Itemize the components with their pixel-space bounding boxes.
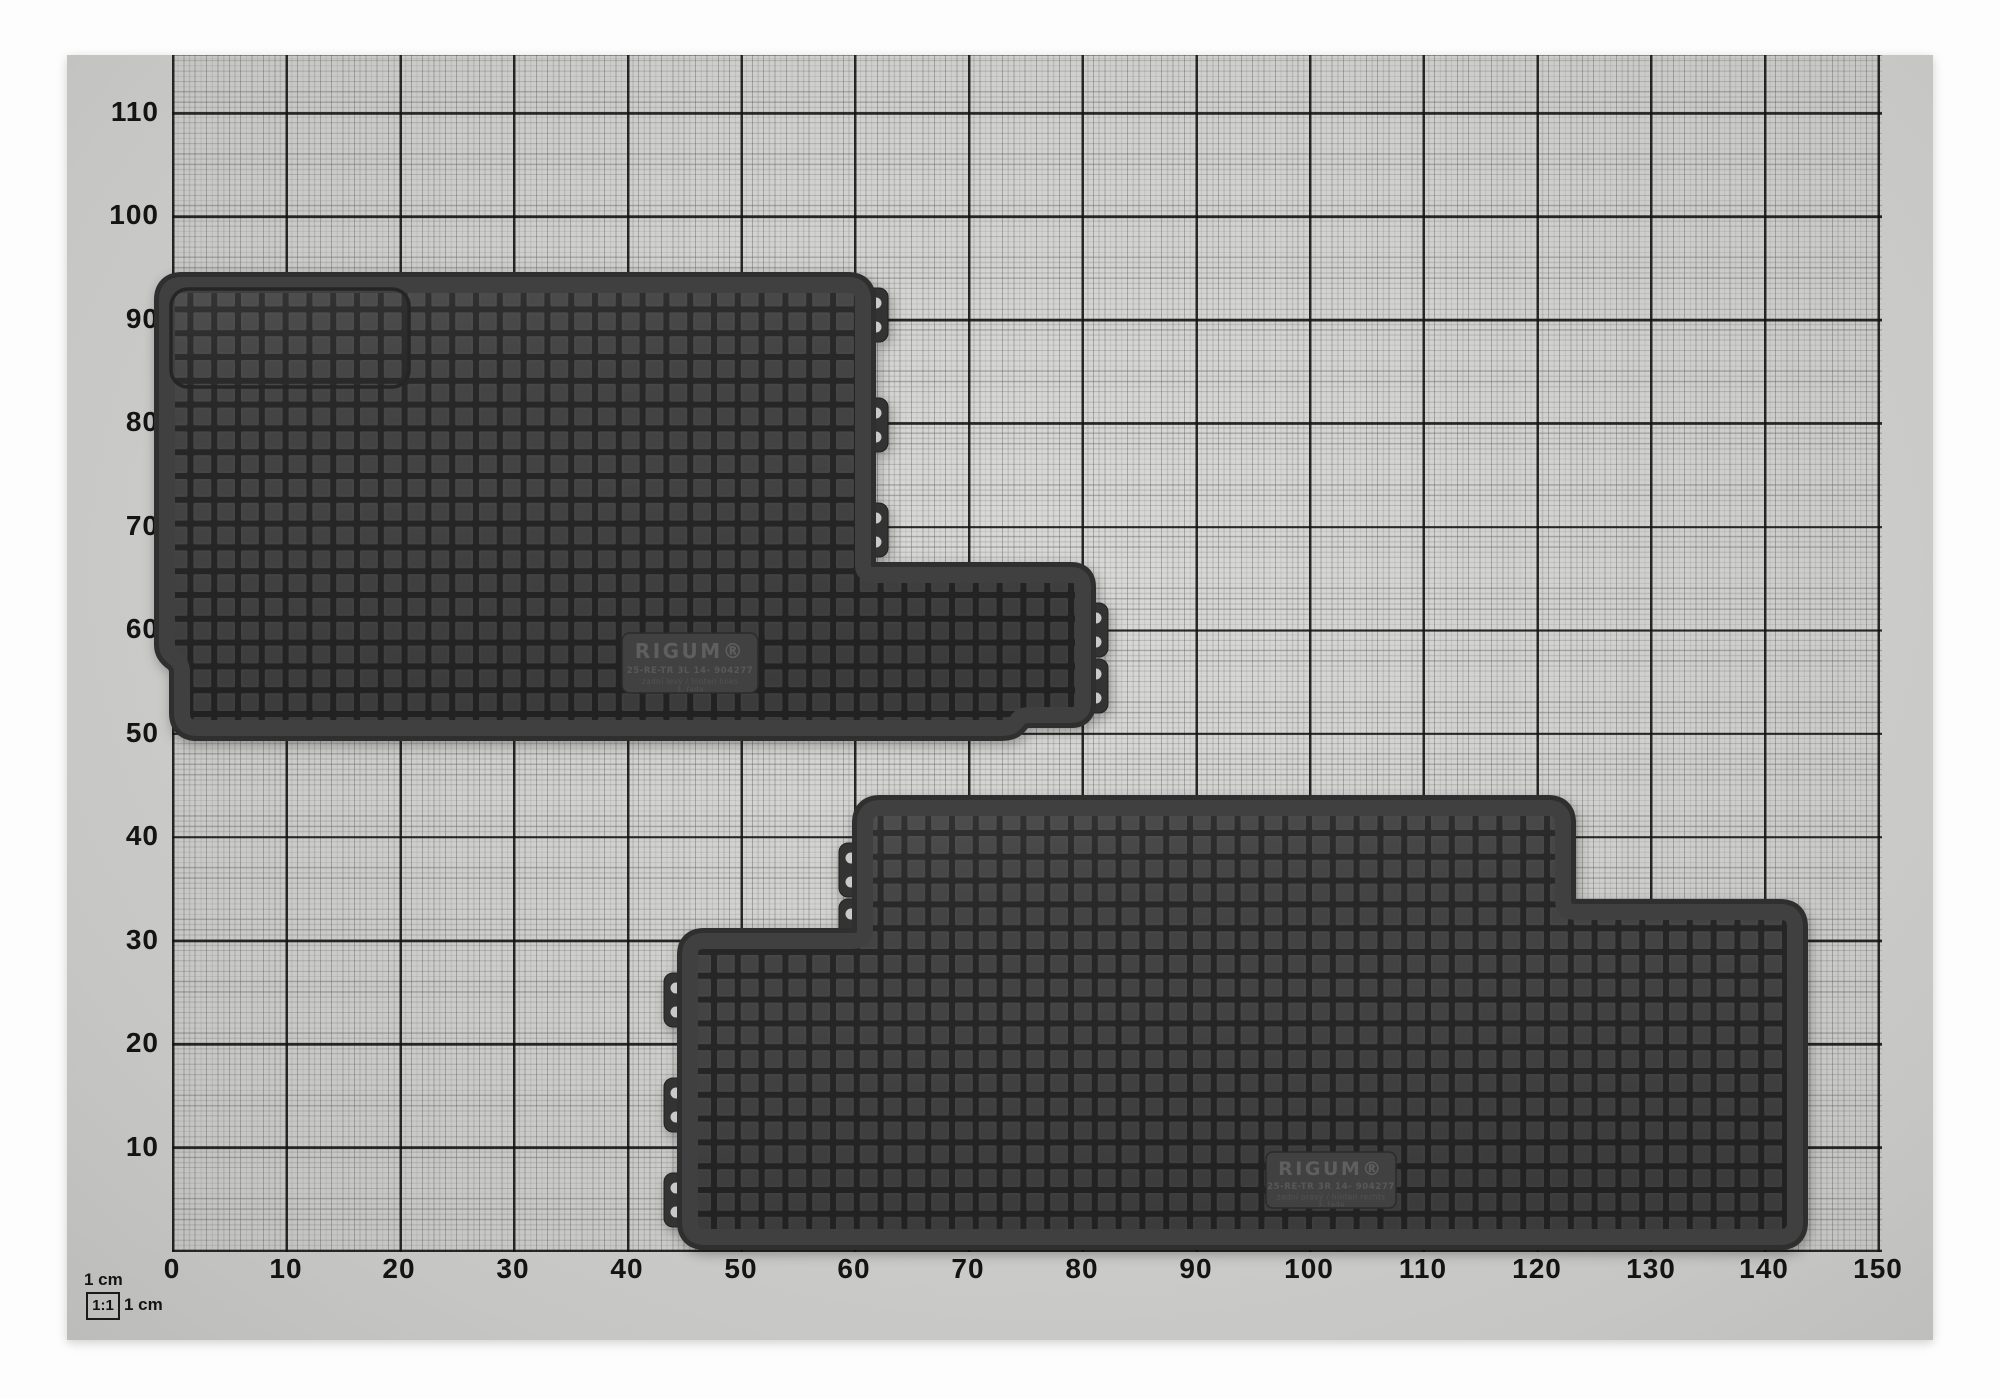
part-code-text: 25-RE-TR 3R 14- 904277 <box>1267 1182 1395 1192</box>
row-text: 3. řada <box>1318 1201 1345 1209</box>
brand-text: RIGUM® <box>635 639 745 663</box>
mat-rear-left-plate: RIGUM® 25-RE-TR 3L 14- 904277 zadní levý… <box>622 633 758 694</box>
brand-text: RIGUM® <box>1278 1158 1384 1180</box>
row-text: 3. řada <box>677 686 704 694</box>
mat-rear-right-plate: RIGUM® 25-RE-TR 3R 14- 904277 zadní prav… <box>1266 1152 1396 1209</box>
floor-mats-layer: RIGUM® 25-RE-TR 3L 14- 904277 zadní levý… <box>0 0 2000 1399</box>
floor-mat-rear-right: RIGUM® 25-RE-TR 3R 14- 904277 zadní prav… <box>664 808 1795 1237</box>
part-code-text: 25-RE-TR 3L 14- 904277 <box>627 666 754 676</box>
product-photo: 110 100 90 80 70 60 50 40 30 20 10 0 10 … <box>0 0 2000 1399</box>
floor-mat-rear-left: RIGUM® 25-RE-TR 3L 14- 904277 zadní levý… <box>167 285 1108 728</box>
